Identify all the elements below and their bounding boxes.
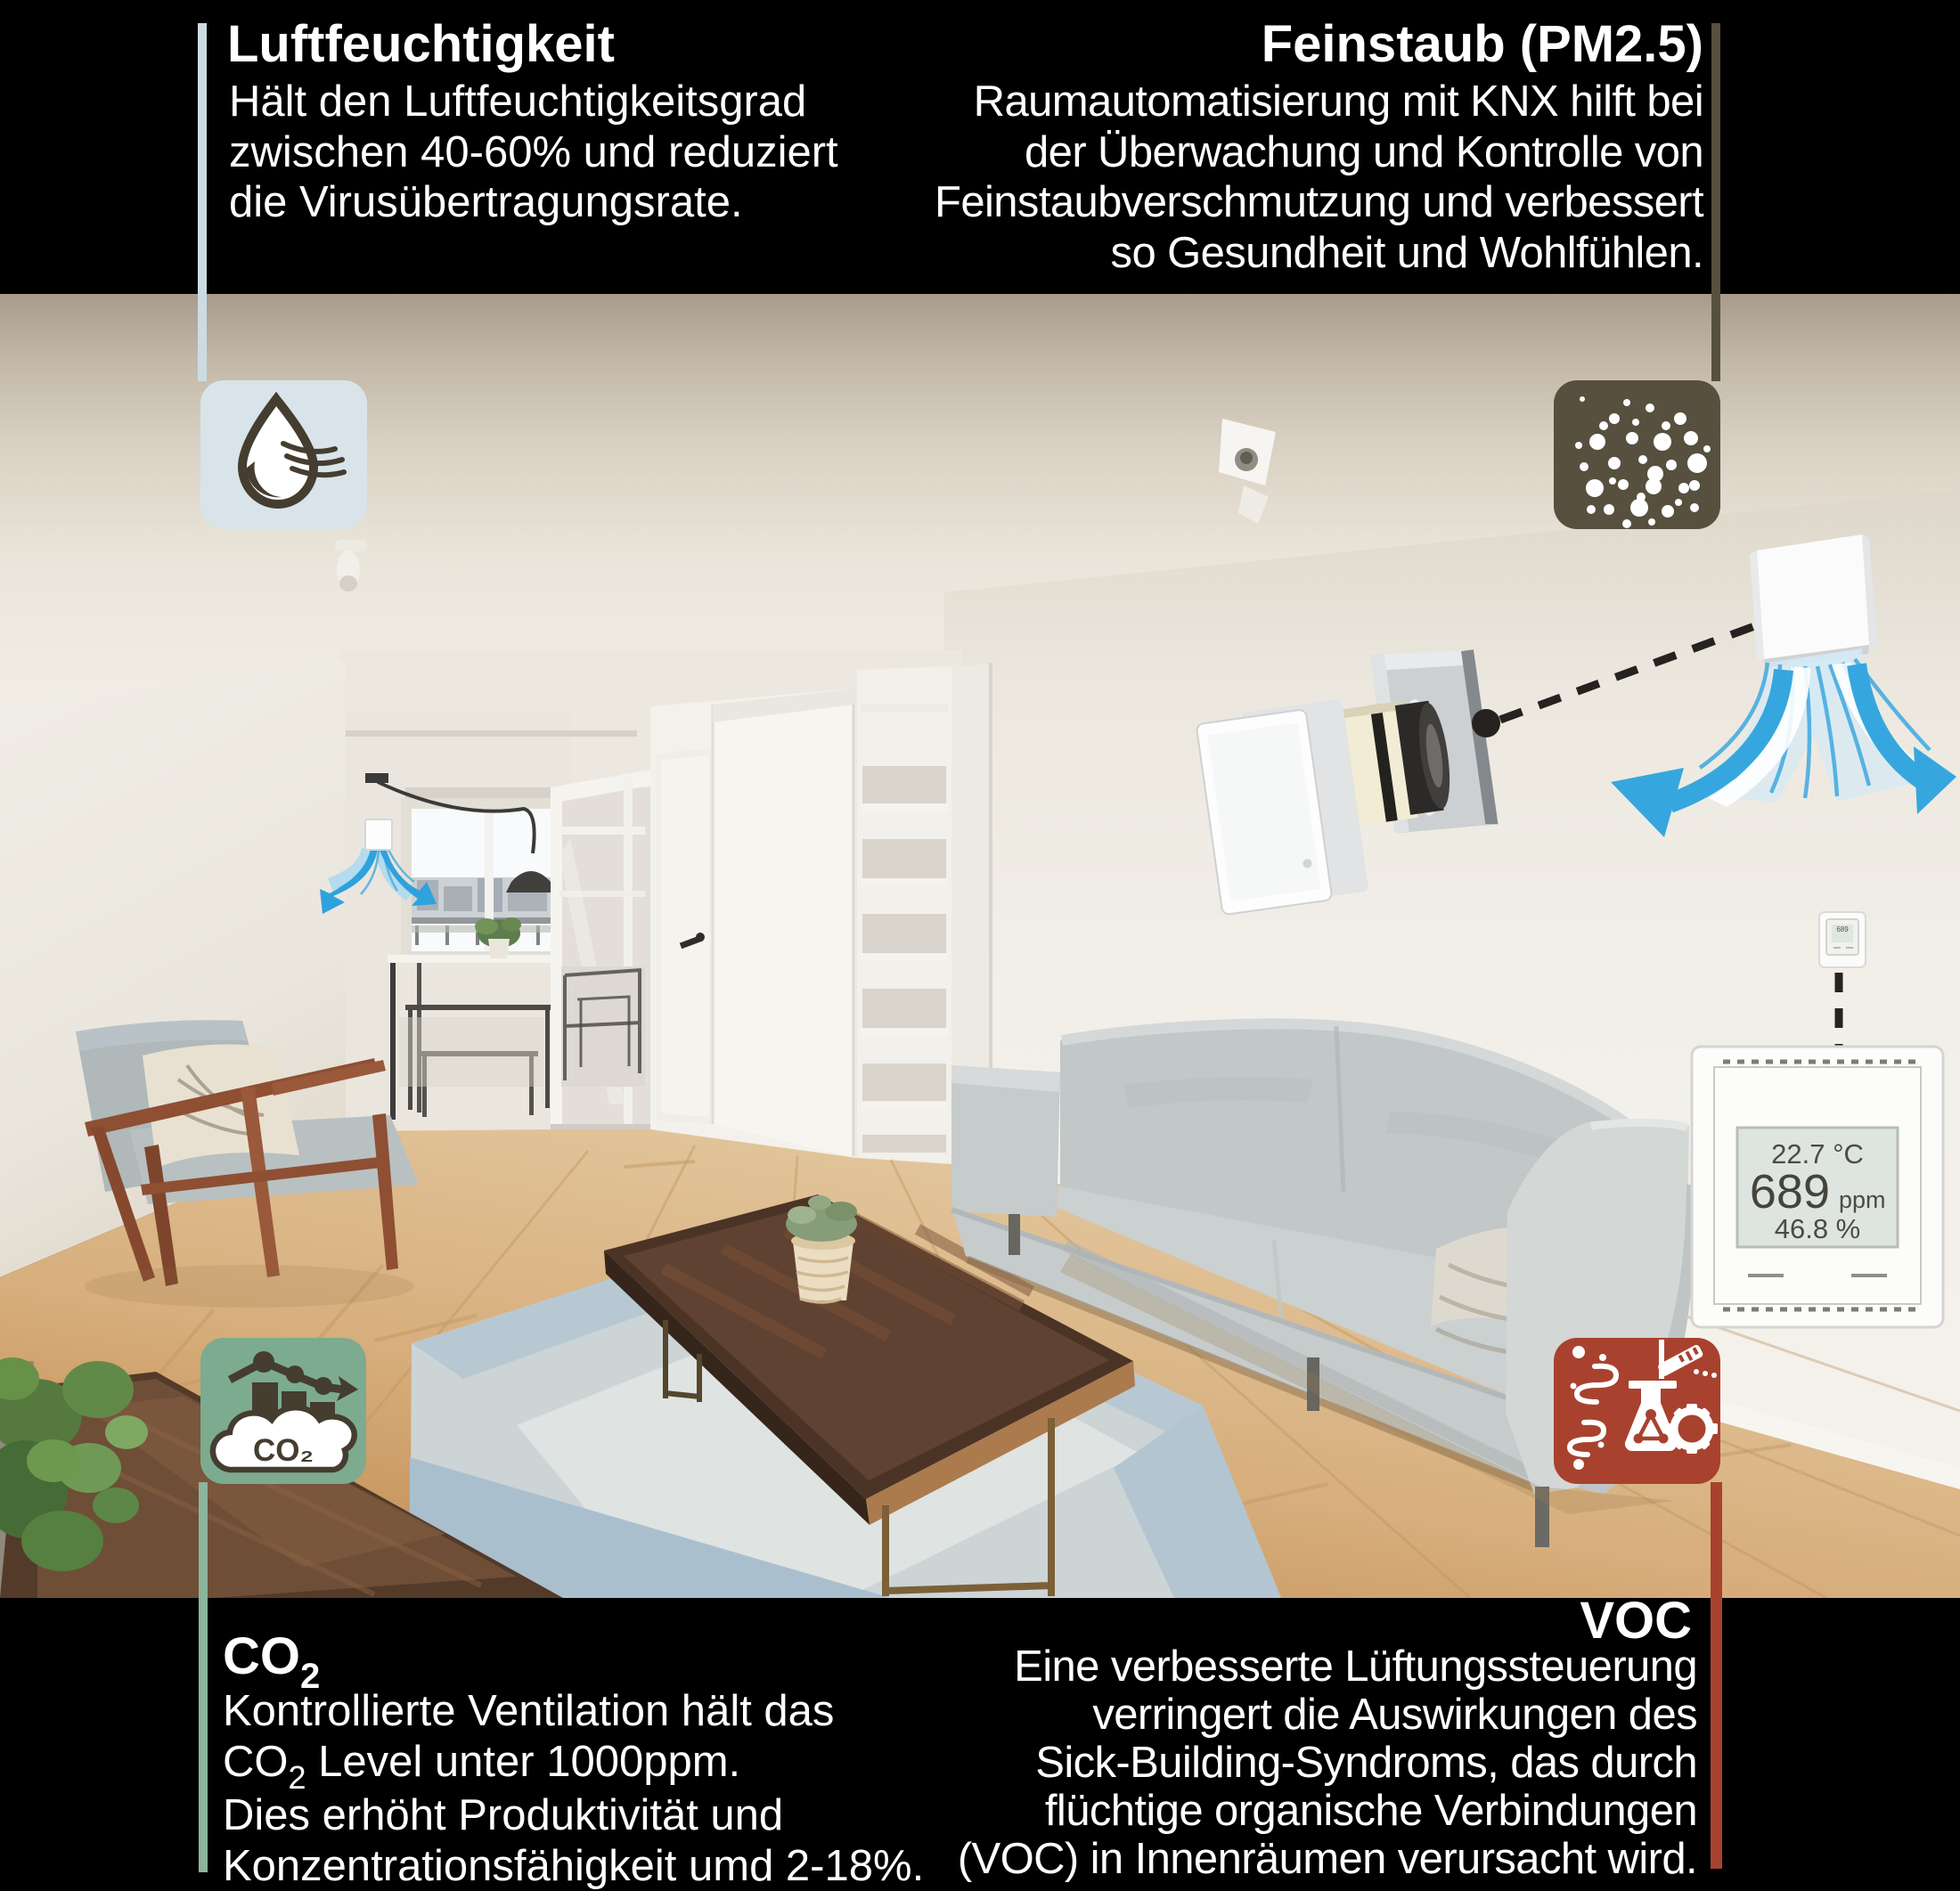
svg-text:ppm: ppm xyxy=(1839,1186,1886,1213)
svg-text:CO₂: CO₂ xyxy=(253,1433,314,1468)
svg-text:689: 689 xyxy=(1836,925,1849,933)
svg-text:689: 689 xyxy=(1750,1165,1830,1219)
svg-text:46.8 %: 46.8 % xyxy=(1775,1213,1861,1244)
